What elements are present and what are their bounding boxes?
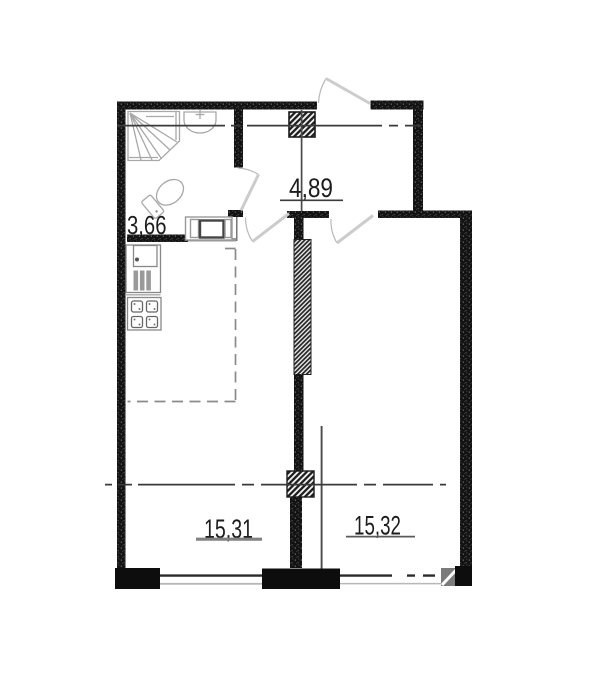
svg-text:3,66: 3,66 xyxy=(127,212,167,240)
svg-text:4,89: 4,89 xyxy=(289,173,333,203)
